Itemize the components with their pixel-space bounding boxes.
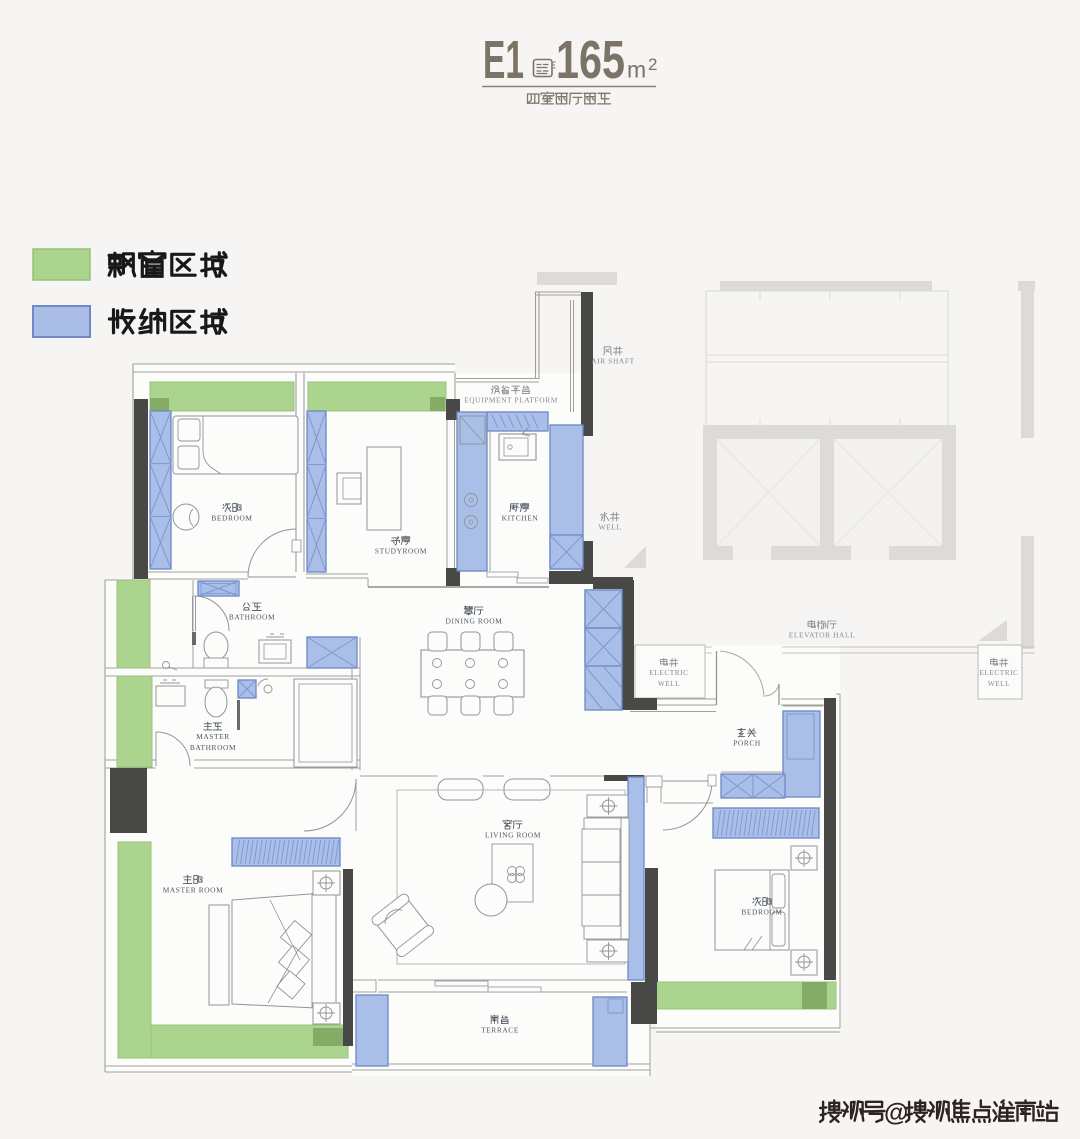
- svg-text:BEDROOM: BEDROOM: [741, 908, 782, 917]
- svg-text:LIVING ROOM: LIVING ROOM: [485, 831, 541, 840]
- svg-text:PORCH: PORCH: [733, 739, 761, 748]
- svg-text:@: @: [884, 1099, 908, 1127]
- svg-text:WELL: WELL: [658, 680, 680, 688]
- svg-text:BATHROOM: BATHROOM: [229, 613, 275, 622]
- svg-text:E1: E1: [483, 30, 524, 90]
- svg-text:MASTER ROOM: MASTER ROOM: [163, 886, 224, 895]
- svg-text:WELL: WELL: [599, 523, 622, 532]
- svg-text:MASTER: MASTER: [196, 732, 230, 741]
- svg-text:ELEVATOR HALL: ELEVATOR HALL: [789, 631, 855, 640]
- svg-text:m: m: [627, 57, 646, 83]
- svg-text:DINING ROOM: DINING ROOM: [446, 617, 503, 626]
- svg-text:BEDROOM: BEDROOM: [211, 514, 252, 523]
- svg-text:AIR SHAFT: AIR SHAFT: [591, 357, 634, 366]
- svg-text:KITCHEN: KITCHEN: [502, 514, 539, 523]
- svg-text:2: 2: [648, 55, 657, 74]
- svg-text:ELECTRIC: ELECTRIC: [979, 669, 1018, 677]
- svg-text:TERRACE: TERRACE: [481, 1026, 519, 1035]
- svg-text:165: 165: [556, 30, 625, 90]
- svg-text:EQUIPMENT PLATFORM: EQUIPMENT PLATFORM: [464, 396, 558, 405]
- svg-text:ELECTRIC: ELECTRIC: [649, 669, 688, 677]
- svg-text:WELL: WELL: [988, 680, 1010, 688]
- svg-text:STUDYROOM: STUDYROOM: [375, 547, 427, 556]
- svg-text:BATHROOM: BATHROOM: [190, 743, 236, 752]
